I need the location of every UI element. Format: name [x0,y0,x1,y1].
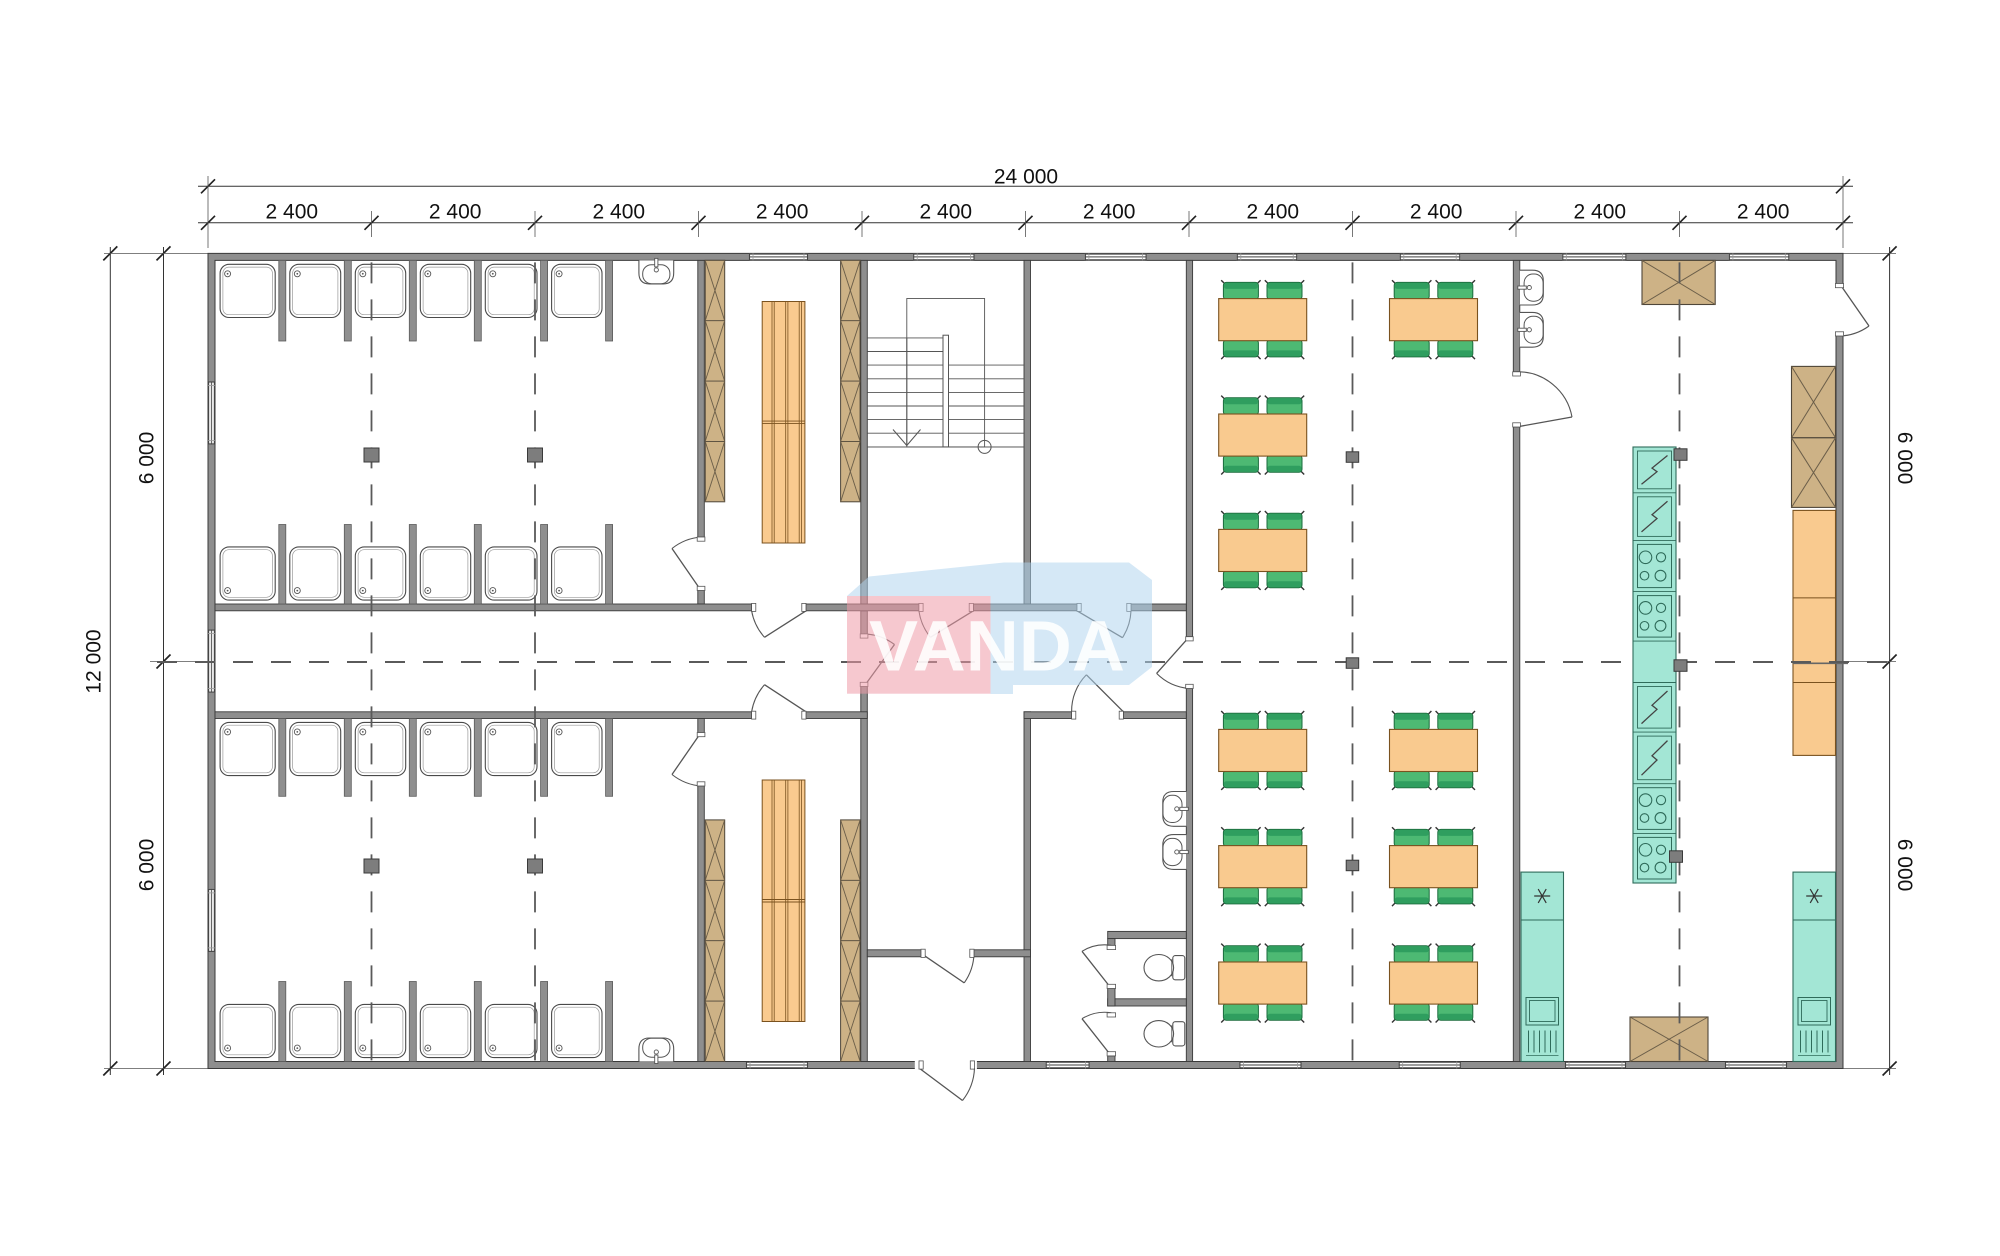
svg-text:2 400: 2 400 [266,201,319,224]
svg-text:2 400: 2 400 [1083,201,1136,224]
svg-text:24 000: 24 000 [994,165,1058,188]
svg-text:2 400: 2 400 [1737,201,1790,224]
svg-text:2 400: 2 400 [1247,201,1300,224]
svg-text:VANDA: VANDA [869,608,1125,687]
svg-text:12 000: 12 000 [83,629,106,693]
svg-text:2 400: 2 400 [593,201,646,224]
svg-text:6 000: 6 000 [1893,432,1916,485]
svg-text:6 000: 6 000 [136,839,159,892]
svg-text:2 400: 2 400 [920,201,973,224]
svg-text:2 400: 2 400 [1410,201,1463,224]
svg-text:6 000: 6 000 [136,432,159,485]
svg-text:2 400: 2 400 [756,201,809,224]
svg-text:2 400: 2 400 [1574,201,1627,224]
svg-text:2 400: 2 400 [429,201,482,224]
svg-text:6 000: 6 000 [1893,839,1916,892]
